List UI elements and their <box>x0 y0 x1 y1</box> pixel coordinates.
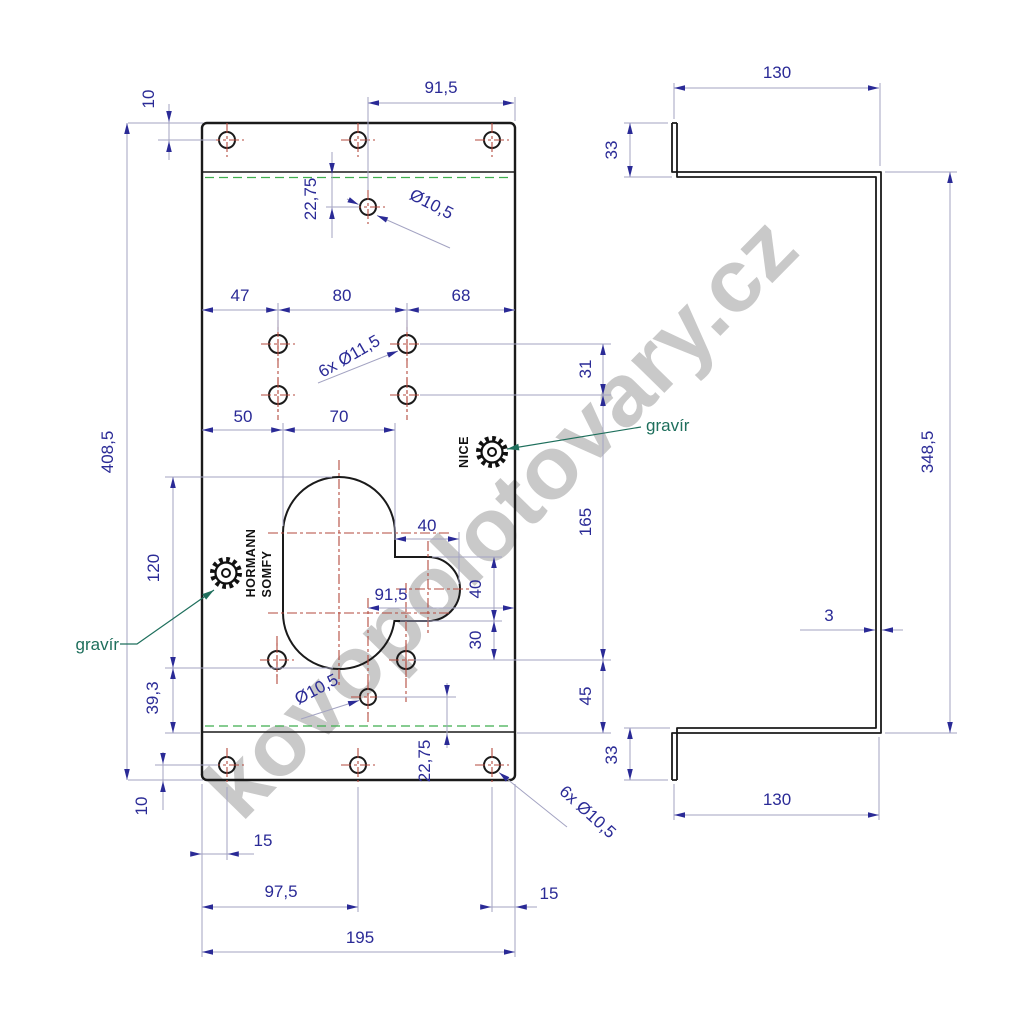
dim-mid-span: 165 <box>576 508 595 536</box>
dim-bottom-mid: 97,5 <box>264 882 297 901</box>
dim-bottom-offset: 10 <box>132 797 151 816</box>
dim-fold-to-hole-top: 22,75 <box>301 178 320 221</box>
dim-edge-right: 15 <box>540 884 559 903</box>
dim-key-height: 120 <box>144 554 163 582</box>
dim-key-width: 70 <box>330 407 349 426</box>
dim-slot-pos: 91,5 <box>374 585 407 604</box>
dim-total-height: 408,5 <box>98 431 117 474</box>
engrave-leader-left <box>120 590 214 644</box>
dim-top-hole-to-edge: 91,5 <box>424 78 457 97</box>
dim-flange-bottom: 130 <box>763 790 791 809</box>
dim-top-offset: 10 <box>139 90 158 109</box>
engrave-label-left: gravír <box>76 635 120 654</box>
dim-slot-width: 40 <box>418 516 437 535</box>
engrave-label-right: gravír <box>646 416 690 435</box>
brand-nice-label: NICE <box>457 436 471 468</box>
dim-total-width: 195 <box>346 928 374 947</box>
brand-somfy-label: SOMFY <box>260 550 274 597</box>
cad-drawing: kovopolotovary.cz <box>0 0 1024 1024</box>
dim-lip-bottom: 33 <box>602 746 621 765</box>
dim-web-height: 348,5 <box>918 431 937 474</box>
dim-slot-height: 40 <box>466 580 485 599</box>
brand-hormann-label: HORMANN <box>244 529 258 598</box>
dim-col-left: 47 <box>231 286 250 305</box>
dim-fold-to-hole-bottom: 22,75 <box>415 740 434 783</box>
gear-icon-right <box>479 439 506 466</box>
gear-icon-left <box>213 560 240 587</box>
side-view: 130 33 348,5 3 33 130 <box>602 63 957 820</box>
dim-corner-dia: 6x Ø10,5 <box>556 782 620 842</box>
dim-key-left: 50 <box>234 407 253 426</box>
side-dimension-lines <box>630 88 950 815</box>
dim-lip-top: 33 <box>602 141 621 160</box>
dim-key-to-fold: 39,3 <box>143 681 162 714</box>
side-extension-lines <box>624 83 957 820</box>
dim-grid-dia: 6x Ø11,5 <box>315 331 383 381</box>
dim-hole-dia-top: Ø10,5 <box>407 185 457 223</box>
dim-flange-top: 130 <box>763 63 791 82</box>
dim-col-mid: 80 <box>333 286 352 305</box>
dim-thickness: 3 <box>824 606 833 625</box>
drawing-canvas: kovopolotovary.cz <box>0 0 1024 1024</box>
dim-edge-left: 15 <box>254 831 273 850</box>
watermark-text: kovopolotovary.cz <box>184 197 815 837</box>
dim-slot-to-holes: 30 <box>466 631 485 650</box>
dim-col-right: 68 <box>452 286 471 305</box>
dim-grid-row-gap: 31 <box>576 360 595 379</box>
profile-outline <box>672 123 881 780</box>
dim-bottom-span: 45 <box>576 687 595 706</box>
front-view: 10 91,5 22,75 Ø10,5 47 80 68 6x Ø11,5 31… <box>76 78 690 957</box>
